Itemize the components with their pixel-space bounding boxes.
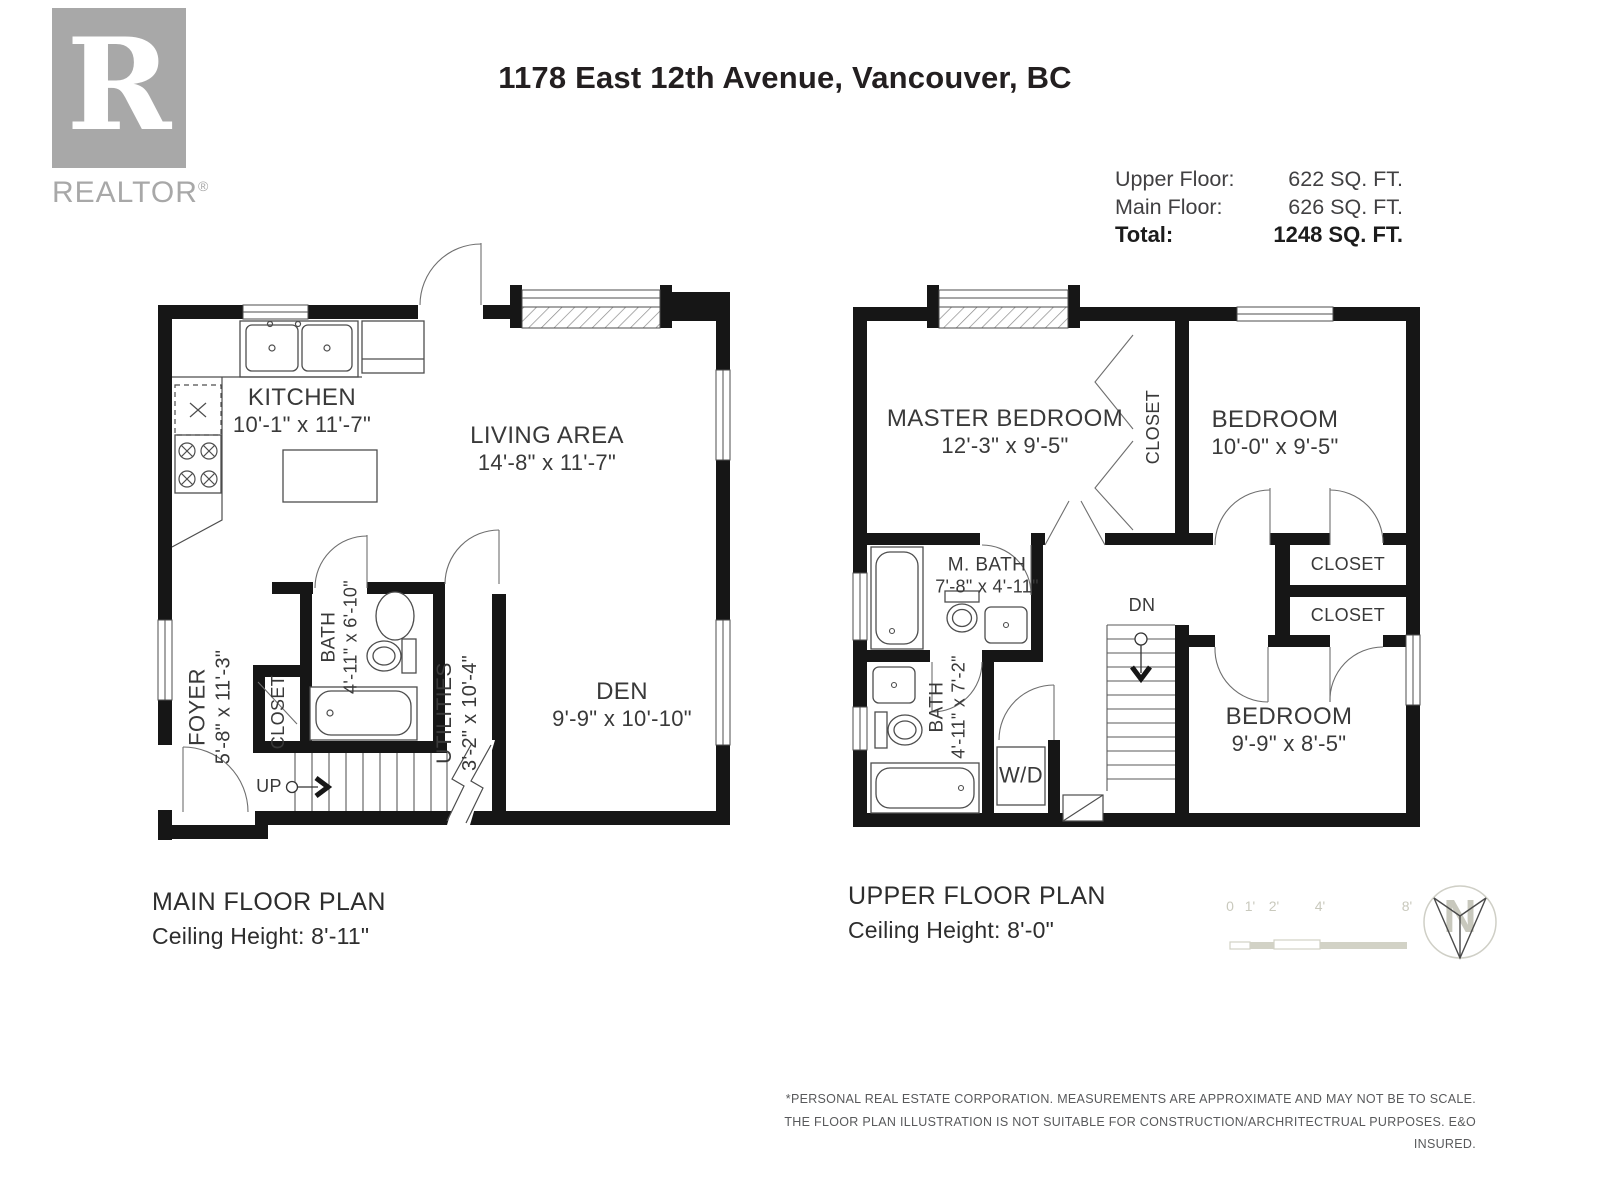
room-label-bath: BATH 4'-11" x 6'-10" — [317, 580, 362, 694]
room-label-closet-2: CLOSET — [1311, 605, 1385, 627]
room-label-closet-1: CLOSET — [1311, 554, 1385, 576]
page-title: 1178 East 12th Avenue, Vancouver, BC — [400, 60, 1170, 96]
room-label-bath-upper: BATH 4'-11" x 7'-2" — [925, 655, 970, 759]
realtor-logo-icon: R — [52, 8, 186, 168]
main-floor-caption: MAIN FLOOR PLAN Ceiling Height: 8'-11" — [152, 888, 386, 950]
scale-tick: 8' — [1402, 898, 1412, 914]
room-label-bedroom-top: BEDROOM 10'-0" x 9'-5" — [1211, 405, 1338, 461]
scale-bar: 0 1' 2' 4' 8' — [1195, 896, 1430, 958]
realtor-r-mark: R — [67, 22, 172, 148]
room-label-foyer: FOYER 5'-8" x 11'-3" — [184, 650, 235, 765]
wd-label: W/D — [999, 763, 1043, 790]
realtor-wordmark: REALTOR® — [52, 176, 222, 210]
disclaimer: *PERSONAL REAL ESTATE CORPORATION. MEASU… — [756, 1088, 1476, 1156]
upper-floor-title: UPPER FLOOR PLAN — [848, 882, 1106, 911]
area-row-main: Main Floor: 626 SQ. FT. — [1115, 194, 1403, 222]
floor-plan-sheet: R REALTOR® 1178 East 12th Avenue, Vancou… — [0, 0, 1600, 1200]
area-label: Main Floor: — [1115, 195, 1223, 220]
area-label: Upper Floor: — [1115, 167, 1235, 192]
room-label-den: DEN 9'-9" x 10'-10" — [552, 677, 692, 733]
upper-floor-plan-drawing — [845, 235, 1435, 855]
up-arrow-icon — [287, 778, 329, 796]
dn-arrow-icon — [1132, 633, 1150, 679]
realtor-logo: R REALTOR® — [52, 8, 222, 210]
disclaimer-line-2: THE FLOOR PLAN ILLUSTRATION IS NOT SUITA… — [756, 1111, 1476, 1156]
scale-tick: 2' — [1269, 898, 1279, 914]
room-label-living-area: LIVING AREA 14'-8" x 11'-7" — [470, 421, 624, 477]
room-label-closet: CLOSET — [268, 675, 290, 749]
room-label-bedroom-bottom: BEDROOM 9'-9" x 8'-5" — [1226, 702, 1353, 758]
area-value: 622 SQ. FT. — [1288, 167, 1403, 192]
dn-label: DN — [1129, 595, 1156, 617]
main-floor-ceiling: Ceiling Height: 8'-11" — [152, 923, 386, 950]
scale-tick: 4' — [1315, 898, 1325, 914]
scale-tick: 1' — [1245, 898, 1255, 914]
room-label-utilities: UTILITIES 3'-2" x 10'-4" — [432, 655, 482, 771]
upper-floor-ceiling: Ceiling Height: 8'-0" — [848, 917, 1106, 944]
disclaimer-line-1: *PERSONAL REAL ESTATE CORPORATION. MEASU… — [756, 1088, 1476, 1111]
north-arrow-icon: N — [1418, 876, 1502, 968]
scale-tick: 0 — [1226, 898, 1234, 914]
main-floor-title: MAIN FLOOR PLAN — [152, 888, 386, 917]
room-label-master-closet: CLOSET — [1143, 390, 1165, 464]
area-value: 626 SQ. FT. — [1288, 195, 1403, 220]
up-label: UP — [256, 776, 282, 798]
upper-floor-plan: MASTER BEDROOM 12'-3" x 9'-5" CLOSET BED… — [845, 235, 1435, 855]
registered-mark: ® — [198, 178, 209, 194]
room-label-kitchen: KITCHEN 10'-1" x 11'-7" — [233, 383, 371, 439]
main-floor-plan: KITCHEN 10'-1" x 11'-7" LIVING AREA 14'-… — [150, 235, 740, 855]
room-label-master-bath: M. BATH 7'-8" x 4'-11" — [935, 553, 1039, 598]
room-label-master-bedroom: MASTER BEDROOM 12'-3" x 9'-5" — [887, 404, 1123, 460]
area-row-upper: Upper Floor: 622 SQ. FT. — [1115, 166, 1403, 194]
upper-floor-caption: UPPER FLOOR PLAN Ceiling Height: 8'-0" — [848, 882, 1106, 944]
